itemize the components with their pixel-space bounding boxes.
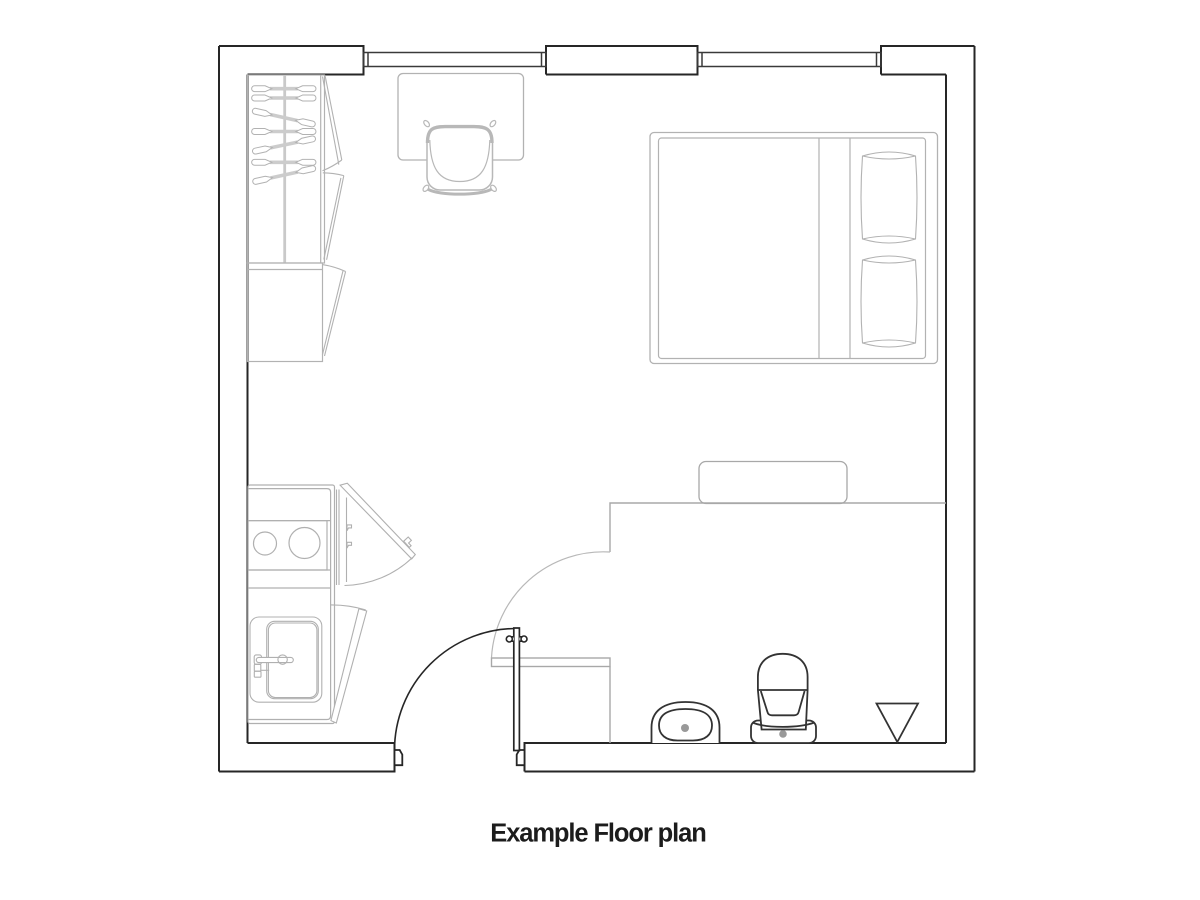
svg-text:Example Floor plan: Example Floor plan	[490, 820, 705, 848]
